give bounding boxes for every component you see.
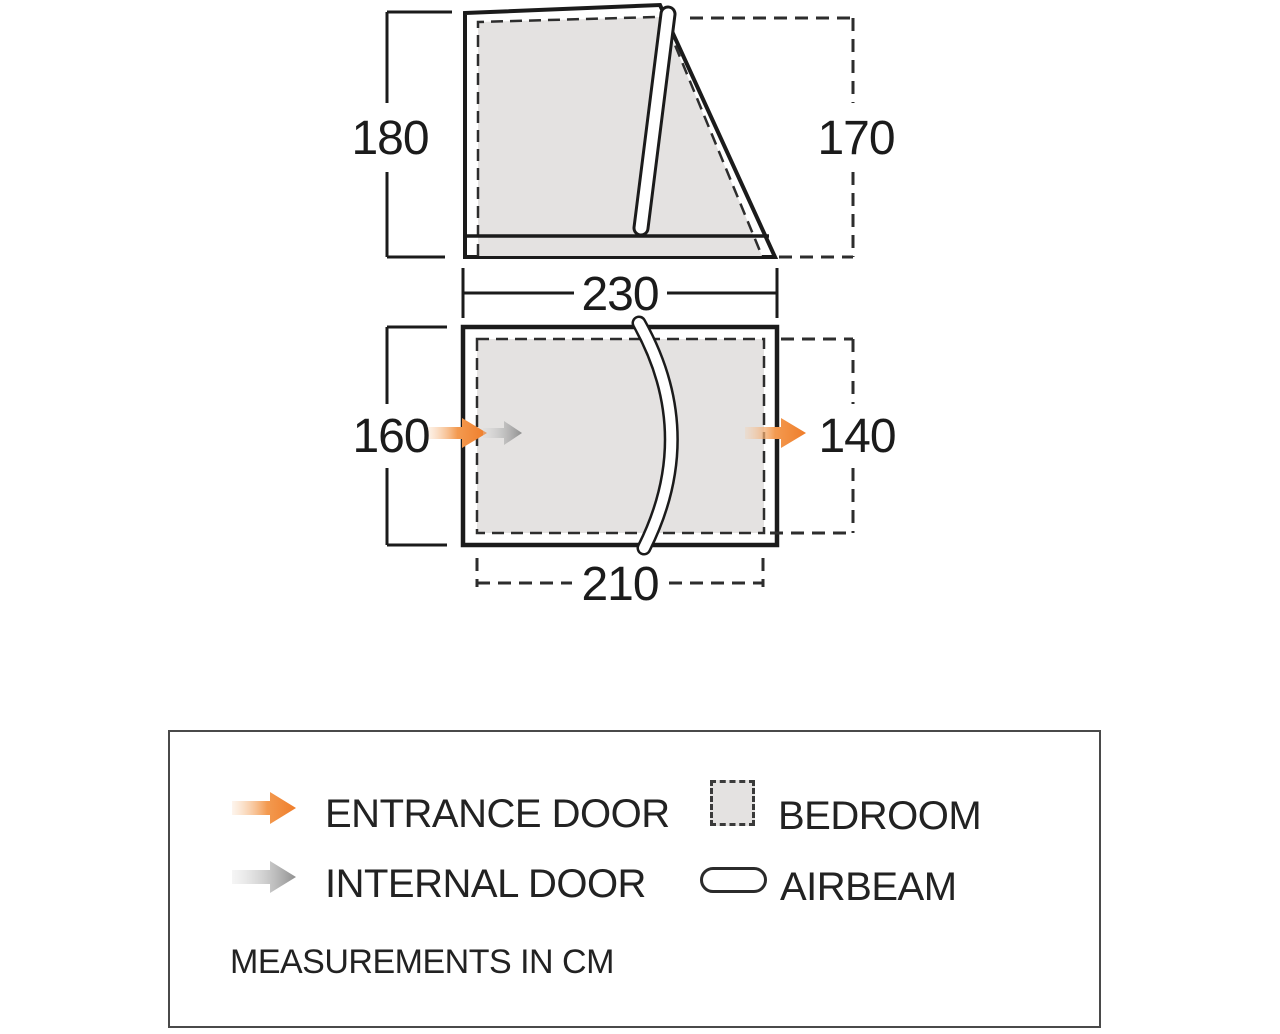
- tent-dimensions-diagram: 180 170 230: [0, 0, 1280, 1034]
- airbeam-icon: [700, 867, 767, 893]
- dimension-140-label: 140: [818, 410, 895, 463]
- dimension-180-label: 180: [351, 112, 428, 165]
- internal-door-label: INTERNAL DOOR: [325, 864, 646, 904]
- internal-door-icon: [232, 860, 297, 894]
- entrance-door-icon: [232, 791, 297, 825]
- dimension-170-label: 170: [817, 112, 894, 165]
- side-view-diagram: 180 170 230: [351, 5, 894, 321]
- dimension-210-label: 210: [581, 558, 658, 611]
- floorplan-bedroom-area: [477, 339, 764, 533]
- diagrams-svg: 180 170 230: [0, 0, 1280, 725]
- dimension-230-label: 230: [581, 268, 658, 321]
- bedroom-label: BEDROOM: [778, 796, 981, 836]
- floor-plan-diagram: 160 140 210: [352, 323, 895, 611]
- bedroom-swatch-icon: [710, 780, 755, 826]
- dimension-160-label: 160: [352, 410, 429, 463]
- airbeam-label: AIRBEAM: [780, 867, 957, 907]
- entrance-door-label: ENTRANCE DOOR: [325, 794, 670, 834]
- measurements-note: MEASUREMENTS IN CM: [230, 945, 614, 979]
